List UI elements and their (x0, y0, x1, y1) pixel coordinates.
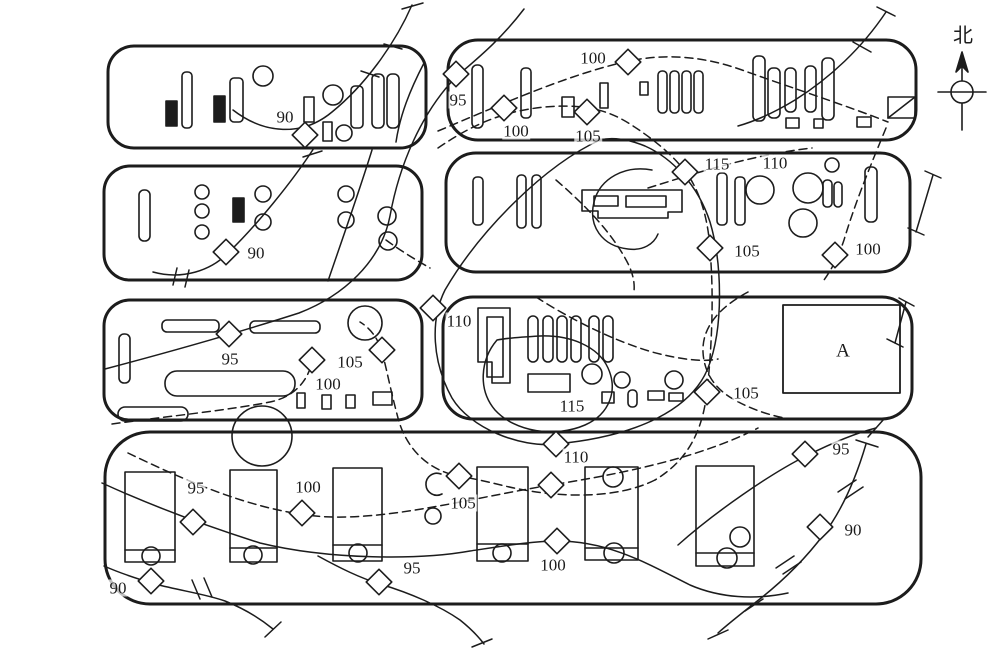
diamond-marker (299, 347, 324, 372)
building-a-label: A (835, 342, 851, 361)
contour-label-110: 110 (563, 449, 590, 466)
contour-label-90: 90 (844, 522, 863, 539)
bay-6 (696, 466, 754, 568)
diamond-marker (697, 235, 722, 260)
machines-top-right (472, 56, 915, 128)
diamond-marker (792, 441, 817, 466)
building-top-left (108, 46, 426, 148)
bay-2 (230, 470, 277, 564)
machines-bottom (125, 406, 754, 568)
contour-label-100: 100 (579, 50, 607, 67)
diamond-marker (420, 295, 445, 320)
site-plan-canvas (0, 0, 1000, 667)
diamond-marker (366, 569, 391, 594)
noise-contour-site-plan: 9095100100105115110901051009510510011011… (0, 0, 1000, 667)
contour-label-90: 90 (109, 580, 128, 597)
contour-label-110: 110 (446, 313, 473, 330)
building-row3-left (104, 300, 422, 420)
bay-1 (125, 472, 175, 565)
contour-label-115: 115 (559, 398, 586, 415)
diamond-marker (544, 528, 569, 553)
contour-label-90: 90 (247, 245, 266, 262)
contour-label-100: 100 (502, 123, 530, 140)
contour-label-100: 100 (539, 557, 567, 574)
diamond-marker (180, 509, 205, 534)
diamond-marker (289, 500, 314, 525)
contour-label-105: 105 (732, 385, 760, 402)
diamond-marker (807, 514, 832, 539)
corner-square-diagonal (888, 97, 915, 118)
contour-label-100: 100 (294, 479, 322, 496)
diamond-marker (694, 379, 719, 404)
contour-label-105: 105 (336, 354, 364, 371)
diamond-marker (216, 321, 241, 346)
compass (938, 52, 986, 130)
contour-label-95: 95 (221, 351, 240, 368)
diamond-marker (369, 337, 394, 362)
bay-5 (585, 467, 638, 563)
diamond-marker (822, 242, 847, 267)
contour-label-100: 100 (314, 376, 342, 393)
building-row2-left (104, 166, 422, 280)
diamond-marker (672, 159, 697, 184)
contour-label-110: 110 (762, 155, 789, 172)
contour-label-115: 115 (704, 156, 731, 173)
contour-label-95: 95 (403, 560, 422, 577)
diamond-marker (138, 568, 163, 593)
diamond-marker (213, 239, 238, 264)
north-label: 北 (952, 26, 974, 46)
diamond-marker (446, 463, 471, 488)
machines-row2-left (139, 185, 397, 250)
diamond-marker (292, 122, 317, 147)
contours-dashed (112, 57, 888, 517)
contour-label-90: 90 (276, 109, 295, 126)
contour-label-105: 105 (733, 243, 761, 260)
c-arc (426, 473, 442, 495)
diamond-marker (574, 99, 599, 124)
measurement-markers (138, 49, 847, 594)
contour-label-100: 100 (854, 241, 882, 258)
contour-label-95: 95 (449, 92, 468, 109)
contour-label-105: 105 (449, 495, 477, 512)
bay-3 (333, 468, 382, 562)
contour-label-105: 105 (574, 128, 602, 145)
diamond-marker (615, 49, 640, 74)
contour-label-95: 95 (187, 480, 206, 497)
contour-label-95: 95 (832, 441, 851, 458)
large-circle (232, 406, 292, 466)
